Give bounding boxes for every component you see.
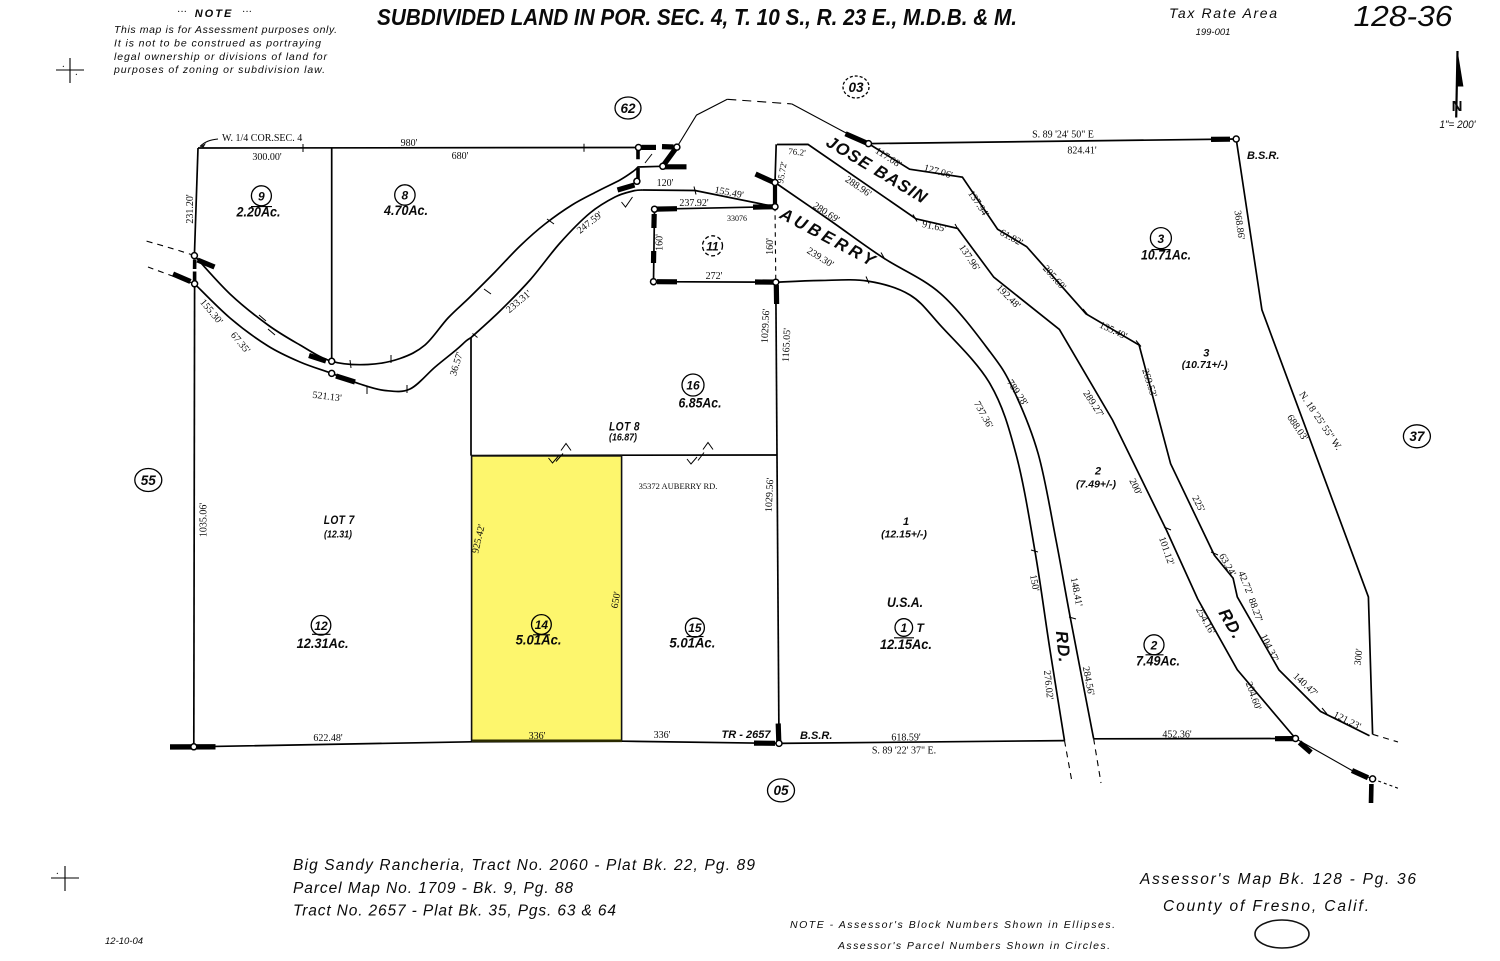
svg-text:1"= 200': 1"= 200' <box>1440 119 1477 131</box>
svg-text:8: 8 <box>402 189 409 203</box>
svg-text:purposes of zoning or subdivis: purposes of zoning or subdivision law. <box>113 64 325 76</box>
svg-text:199-001: 199-001 <box>1196 27 1231 38</box>
svg-text:336': 336' <box>529 731 546 742</box>
svg-text:LOT 8: LOT 8 <box>609 420 640 434</box>
svg-text:05: 05 <box>773 783 789 798</box>
svg-text:272': 272' <box>706 271 723 282</box>
svg-text:2.20Ac.: 2.20Ac. <box>236 204 281 220</box>
svg-text:···: ··· <box>242 7 252 18</box>
svg-text:980': 980' <box>401 138 418 149</box>
svg-text:16: 16 <box>686 379 700 393</box>
svg-text:Tax Rate Area: Tax Rate Area <box>1169 5 1277 21</box>
svg-text:B.S.R.: B.S.R. <box>1247 150 1279 162</box>
svg-text:55: 55 <box>141 473 157 488</box>
svg-text:N: N <box>1452 98 1463 115</box>
svg-text:35372 AUBERRY RD.: 35372 AUBERRY RD. <box>639 481 718 491</box>
svg-text:Assessor's Parcel Numbers S: Assessor's Parcel Numbers Shown in Circl… <box>837 940 1110 952</box>
svg-text:1: 1 <box>903 516 909 528</box>
svg-text:12: 12 <box>314 619 328 633</box>
svg-text:10.71Ac.: 10.71Ac. <box>1141 247 1191 263</box>
svg-text:Parcel Map No. 1709 - Bk. 9,: Parcel Map No. 1709 - Bk. 9, Pg. 88 <box>293 880 573 897</box>
svg-text:12.31Ac.: 12.31Ac. <box>297 635 349 651</box>
svg-text:(10.71+/-): (10.71+/-) <box>1182 359 1228 371</box>
svg-text:14: 14 <box>535 618 549 632</box>
svg-text:3: 3 <box>1158 232 1165 246</box>
svg-text:237.92': 237.92' <box>679 198 709 209</box>
svg-text:1: 1 <box>900 621 907 635</box>
svg-text:2: 2 <box>1150 639 1158 653</box>
svg-text:12-10-04: 12-10-04 <box>105 936 143 947</box>
svg-text:12.15Ac.: 12.15Ac. <box>880 636 932 652</box>
svg-text:231.20': 231.20' <box>185 194 196 224</box>
svg-text:1029.56': 1029.56' <box>760 308 773 343</box>
svg-text:(16.87): (16.87) <box>609 433 638 444</box>
svg-text:(7.49+/-): (7.49+/-) <box>1076 479 1116 491</box>
svg-text:S. 89 '22' 37" E.: S. 89 '22' 37" E. <box>872 746 936 757</box>
svg-text:legal ownership or divisions o: legal ownership or divisions of land for <box>114 51 328 63</box>
svg-text:120': 120' <box>657 178 674 189</box>
svg-text:76.2': 76.2' <box>788 146 807 158</box>
svg-text:3: 3 <box>1203 348 1209 360</box>
svg-text:452.36': 452.36' <box>1162 730 1192 741</box>
svg-text:160': 160' <box>765 238 776 255</box>
svg-text:618.59': 618.59' <box>891 733 921 744</box>
svg-text:NOTE: NOTE <box>195 8 234 20</box>
svg-text:County of Fresno, Calif.: County of Fresno, Calif. <box>1163 898 1369 915</box>
svg-text:SUBDIVIDED LAND IN POR. SEC. 4: SUBDIVIDED LAND IN POR. SEC. 4, T. 10 S.… <box>377 4 1017 30</box>
svg-text:TR - 2657: TR - 2657 <box>722 729 772 741</box>
svg-text:This map is for Assessment pur: This map is for Assessment purposes only… <box>114 24 337 36</box>
svg-text:160': 160' <box>655 234 666 251</box>
svg-text:33076: 33076 <box>727 214 747 223</box>
svg-text:7.49Ac.: 7.49Ac. <box>1136 653 1180 669</box>
svg-text:U.S.A.: U.S.A. <box>887 594 923 610</box>
svg-text:LOT 7: LOT 7 <box>324 513 356 527</box>
svg-text:622.48': 622.48' <box>313 733 343 744</box>
svg-text:B.S.R.: B.S.R. <box>800 730 832 742</box>
svg-text:6.85Ac.: 6.85Ac. <box>679 395 722 411</box>
svg-text:4.70Ac.: 4.70Ac. <box>383 202 428 218</box>
svg-text:15: 15 <box>688 621 702 635</box>
svg-text:(12.31): (12.31) <box>324 530 353 541</box>
svg-text:Tract No. 2657 - Plat Bk. 35,: Tract No. 2657 - Plat Bk. 35, Pgs. 63 & … <box>293 903 616 920</box>
svg-text:1165.05': 1165.05' <box>781 328 794 363</box>
svg-text:1029.56': 1029.56' <box>764 477 777 512</box>
svg-text:336': 336' <box>654 730 671 741</box>
svg-text:300.00': 300.00' <box>252 152 282 163</box>
svg-text:11: 11 <box>706 240 719 254</box>
svg-text:S. 89 '24' 50" E: S. 89 '24' 50" E <box>1032 130 1094 141</box>
svg-text:1035.06': 1035.06' <box>199 503 210 538</box>
svg-text:5.01Ac.: 5.01Ac. <box>516 632 562 648</box>
svg-text:NOTE - Assessor's Block Numb: NOTE - Assessor's Block Numbers Shown in… <box>790 919 1115 931</box>
svg-text:62: 62 <box>620 101 636 116</box>
svg-text:300': 300' <box>1353 648 1366 666</box>
svg-text:824.41': 824.41' <box>1067 146 1097 157</box>
svg-text:37: 37 <box>1409 429 1426 444</box>
svg-text:RD.: RD. <box>1052 630 1074 664</box>
svg-text:03: 03 <box>848 80 864 95</box>
svg-text:···: ··· <box>177 7 187 18</box>
svg-text:2: 2 <box>1094 466 1101 478</box>
svg-text:680': 680' <box>452 151 469 162</box>
svg-text:5.01Ac.: 5.01Ac. <box>669 635 715 651</box>
svg-text:128-36: 128-36 <box>1354 1 1454 33</box>
svg-text:9: 9 <box>258 190 265 204</box>
svg-text:(12.15+/-): (12.15+/-) <box>881 529 927 541</box>
svg-text:W. 1/4 COR.SEC. 4: W. 1/4 COR.SEC. 4 <box>222 133 302 144</box>
svg-text:It is not to be construed as p: It is not to be construed as portraying <box>114 37 321 49</box>
svg-text:Big Sandy Rancheria, Tract N: Big Sandy Rancheria, Tract No. 2060 - Pl… <box>293 857 755 874</box>
